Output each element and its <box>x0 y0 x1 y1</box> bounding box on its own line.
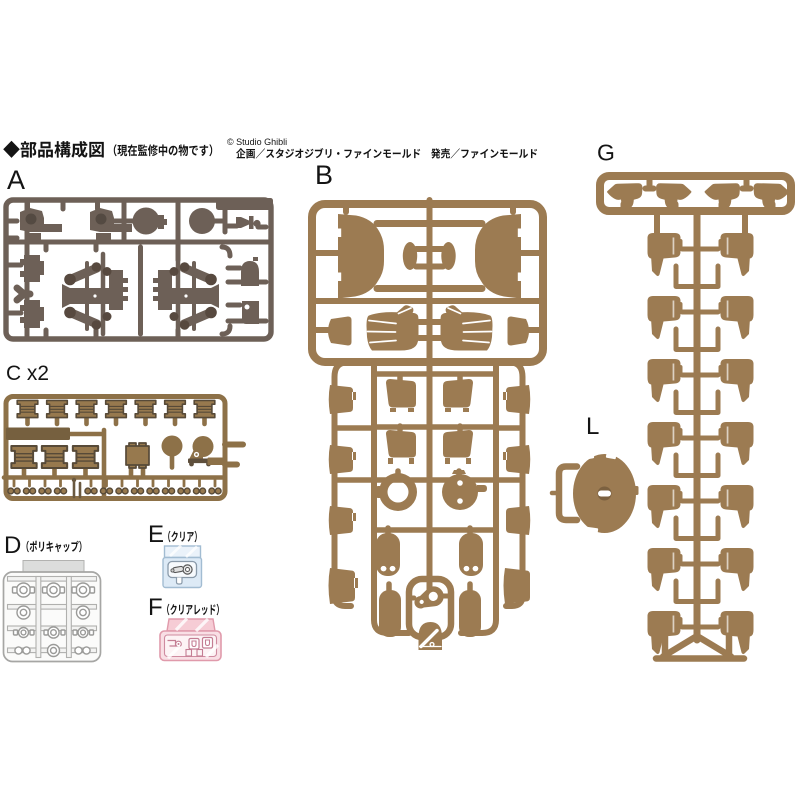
svg-text:E: E <box>148 521 164 548</box>
svg-text:D: D <box>4 532 21 559</box>
svg-text:A: A <box>7 165 25 195</box>
svg-text:B: B <box>315 160 333 190</box>
svg-text:F: F <box>148 594 163 621</box>
svg-text:© Studio Ghibli: © Studio Ghibli <box>227 137 287 147</box>
svg-text:C x2: C x2 <box>6 362 49 385</box>
svg-text:L: L <box>586 413 599 440</box>
svg-text:G: G <box>597 140 615 166</box>
